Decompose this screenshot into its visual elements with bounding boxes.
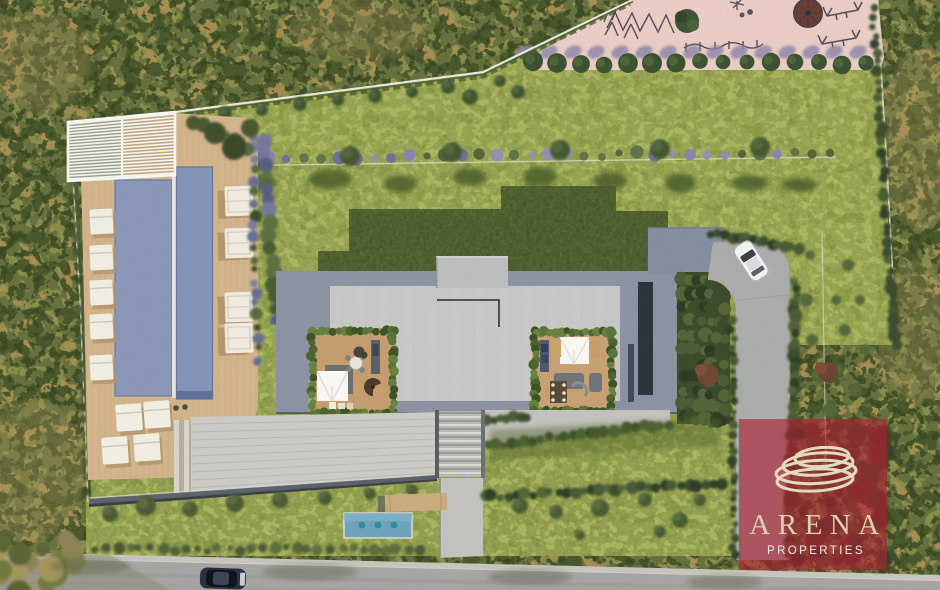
svg-text:ARENA: ARENA — [749, 509, 886, 541]
svg-text:PROPERTIES: PROPERTIES — [767, 545, 865, 557]
